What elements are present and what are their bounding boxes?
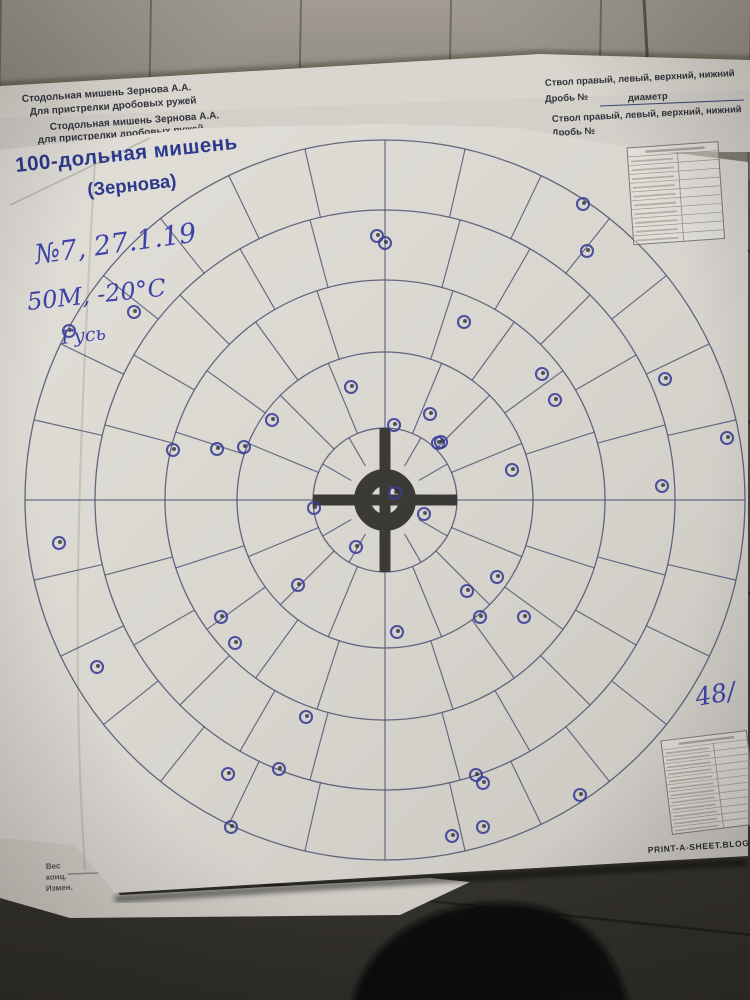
scene-canvas: Стодольная мишень Зернова А.А. Для прист… bbox=[0, 0, 750, 1000]
photo-vignette bbox=[0, 0, 750, 1000]
photo-of-shot-pattern-target: Стодольная мишень Зернова А.А. Для прист… bbox=[0, 0, 750, 1000]
